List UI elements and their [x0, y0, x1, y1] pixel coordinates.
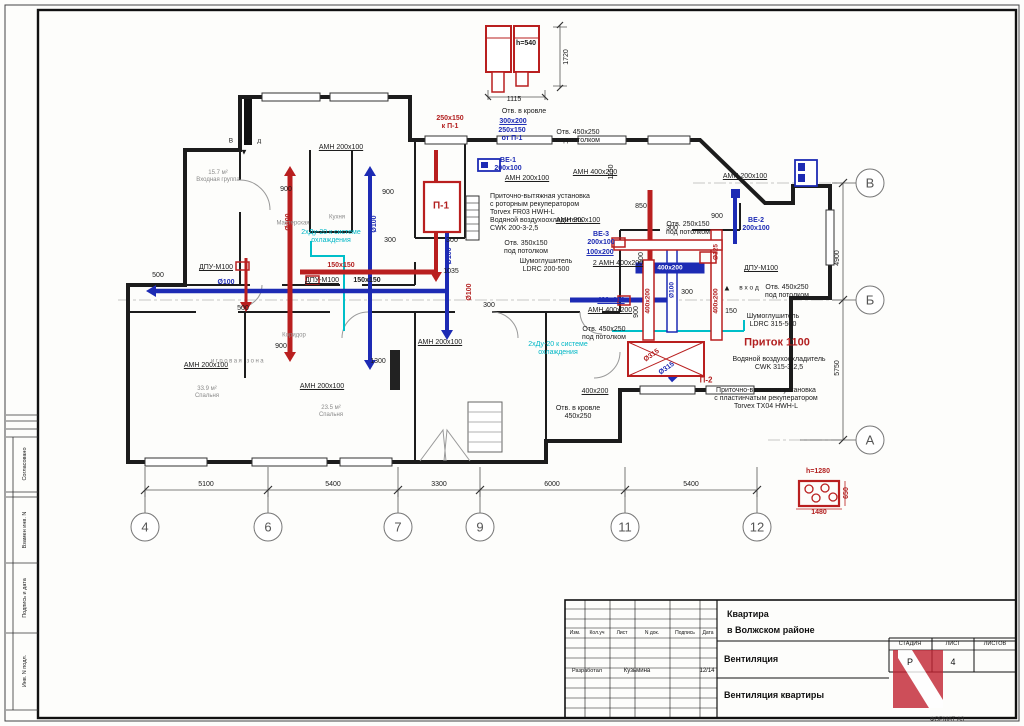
unit-p1 — [424, 182, 460, 232]
walls — [128, 93, 834, 466]
shafts — [244, 99, 502, 452]
drawing-sheet: h=54017201115250x150 к П-1Отв. в кровле3… — [0, 0, 1024, 726]
roof-detail — [486, 26, 539, 92]
supply-ducts — [236, 150, 722, 376]
sheet-frame — [5, 5, 1019, 721]
logo — [893, 650, 943, 708]
plan-drawing — [0, 0, 1024, 726]
legend-detail — [796, 481, 845, 509]
title-block-lines — [565, 600, 1016, 718]
